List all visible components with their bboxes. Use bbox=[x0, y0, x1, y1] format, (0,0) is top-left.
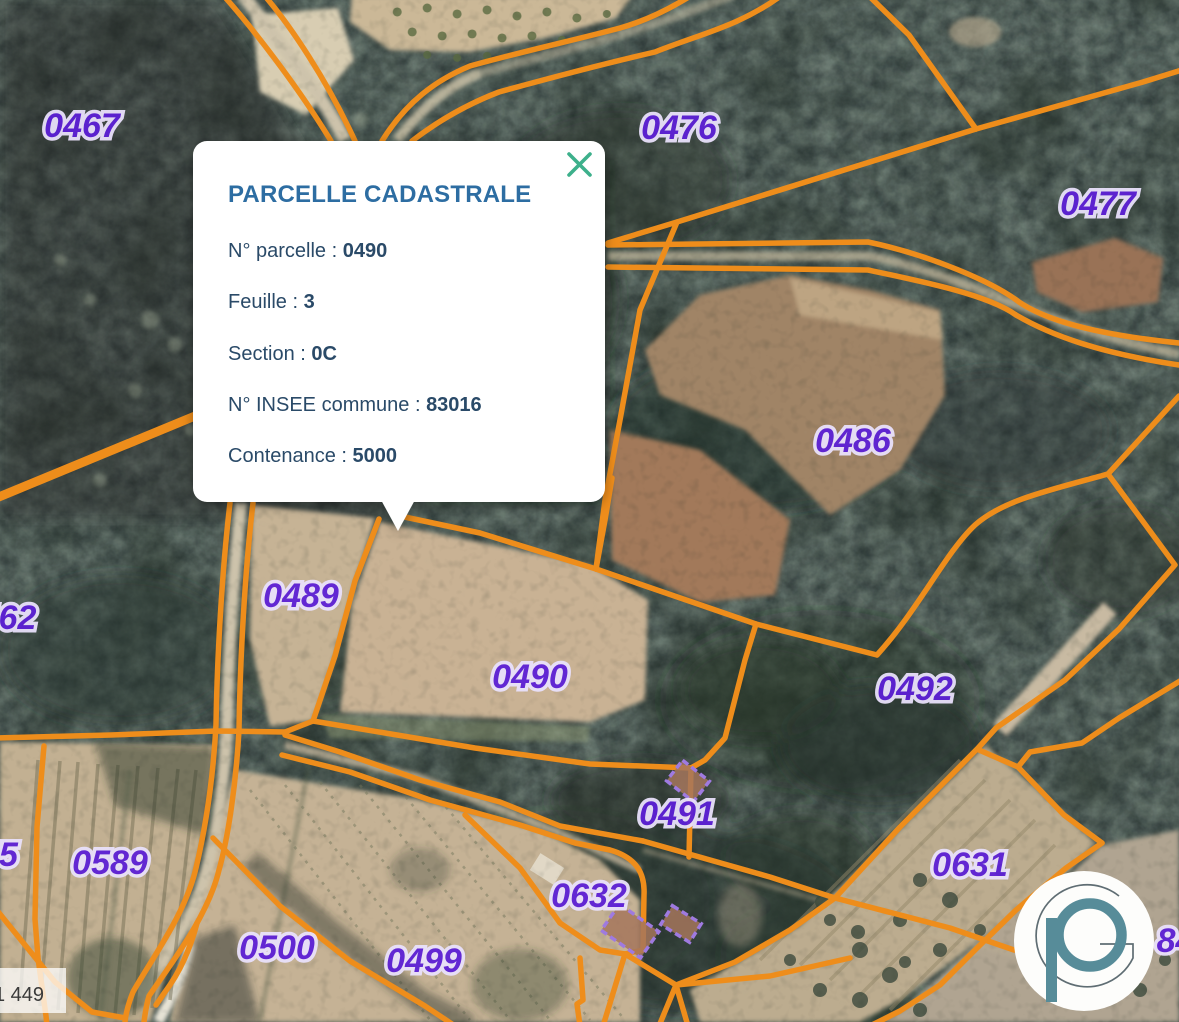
svg-text:0489: 0489 bbox=[263, 577, 339, 615]
svg-text:0589: 0589 bbox=[72, 844, 148, 882]
svg-text:0467: 0467 bbox=[44, 107, 122, 145]
svg-text:0631: 0631 bbox=[932, 846, 1008, 884]
svg-text:0632: 0632 bbox=[551, 877, 627, 915]
svg-text:PARCELLE CADASTRALE: PARCELLE CADASTRALE bbox=[228, 181, 531, 208]
svg-text:0477: 0477 bbox=[1060, 185, 1138, 223]
svg-text:0492: 0492 bbox=[877, 670, 953, 708]
svg-text:1 449: 1 449 bbox=[0, 984, 44, 1006]
svg-text:Contenance : 5000: Contenance : 5000 bbox=[228, 445, 397, 467]
svg-text:0491: 0491 bbox=[639, 795, 715, 833]
svg-text:N° INSEE commune : 83016: N° INSEE commune : 83016 bbox=[228, 394, 482, 416]
svg-text:45: 45 bbox=[0, 836, 19, 874]
svg-text:Feuille : 3: Feuille : 3 bbox=[228, 291, 315, 313]
svg-text:0490: 0490 bbox=[492, 658, 568, 696]
svg-text:N° parcelle : 0490: N° parcelle : 0490 bbox=[228, 240, 387, 262]
svg-text:0486: 0486 bbox=[815, 422, 892, 460]
svg-text:846: 846 bbox=[1157, 922, 1179, 960]
svg-text:0500: 0500 bbox=[239, 929, 315, 967]
svg-text:0499: 0499 bbox=[386, 942, 462, 980]
svg-text:Section : 0C: Section : 0C bbox=[228, 343, 337, 365]
svg-text:462: 462 bbox=[0, 599, 36, 637]
svg-text:0476: 0476 bbox=[641, 109, 718, 147]
